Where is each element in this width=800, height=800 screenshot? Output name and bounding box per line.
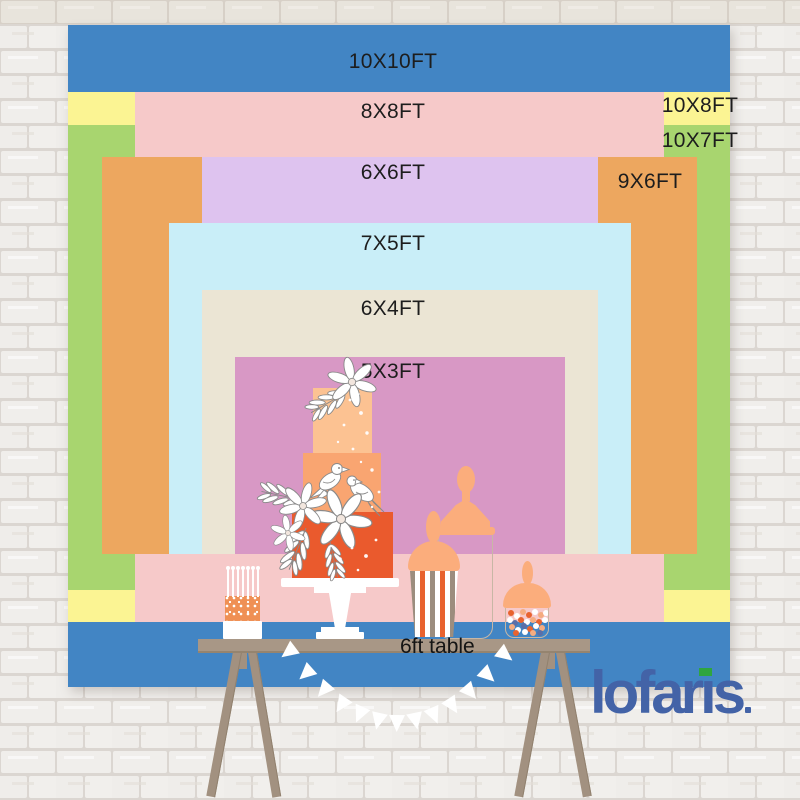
logo-letter-i-with-green-accent: ı <box>700 663 713 723</box>
candle <box>242 569 244 597</box>
candy-dot <box>522 629 528 635</box>
floral-birds-decor <box>255 350 405 585</box>
candy-dot <box>543 610 549 616</box>
logo-text: s <box>713 659 742 726</box>
popcorn-cup-striped-body <box>410 571 458 637</box>
candy-jar-lid-knob <box>522 561 533 585</box>
birthday-candles <box>227 569 259 597</box>
size-label-6x6ft: 6X6FT <box>361 162 426 184</box>
table-size-label: 6ft table <box>400 635 475 659</box>
candle <box>232 569 234 597</box>
logo-text: lofar <box>590 659 700 726</box>
tall-jar-lid-flange <box>436 527 495 535</box>
flower-illustration <box>265 351 383 555</box>
candle <box>247 569 249 597</box>
bunting-pennant <box>406 711 425 731</box>
size-label-9x6ft: 9X6FT <box>618 171 683 193</box>
size-label-6x4ft: 6X4FT <box>361 298 426 320</box>
size-label-7x5ft: 7X5FT <box>361 233 426 255</box>
popcorn-cup-lid-knob <box>426 511 441 543</box>
candle <box>252 569 254 597</box>
cake-stand-foot <box>316 632 364 639</box>
candle-cake-speckled-tier <box>225 596 260 621</box>
backdrop-size-chart-image: 10X10FT 8X8FT 10X8FT 10X7FT 6X6FT 9X6FT … <box>0 0 800 800</box>
candle <box>257 569 259 597</box>
candle <box>227 569 229 597</box>
size-label-10x10ft: 10X10FT <box>349 51 437 73</box>
candle <box>237 569 239 597</box>
bunting-pennant <box>389 715 405 732</box>
lofaris-logo: lofarıs <box>590 663 751 725</box>
cake-stand-step <box>314 587 366 593</box>
size-label-10x8ft: 10X8FT <box>662 95 739 117</box>
table-top: 6ft table <box>198 639 590 653</box>
candy-dot <box>530 630 536 636</box>
candy-dot <box>542 617 548 623</box>
candy-dot <box>513 630 519 636</box>
candy-jar-glass-body <box>505 608 549 638</box>
tall-jar-lid-knob <box>457 466 475 493</box>
size-label-8x8ft: 8X8FT <box>361 101 426 123</box>
logo-dot <box>745 707 751 713</box>
candle-cake-base <box>223 621 262 639</box>
candy-dot <box>537 630 543 636</box>
size-label-10x7ft: 10X7FT <box>662 130 739 152</box>
